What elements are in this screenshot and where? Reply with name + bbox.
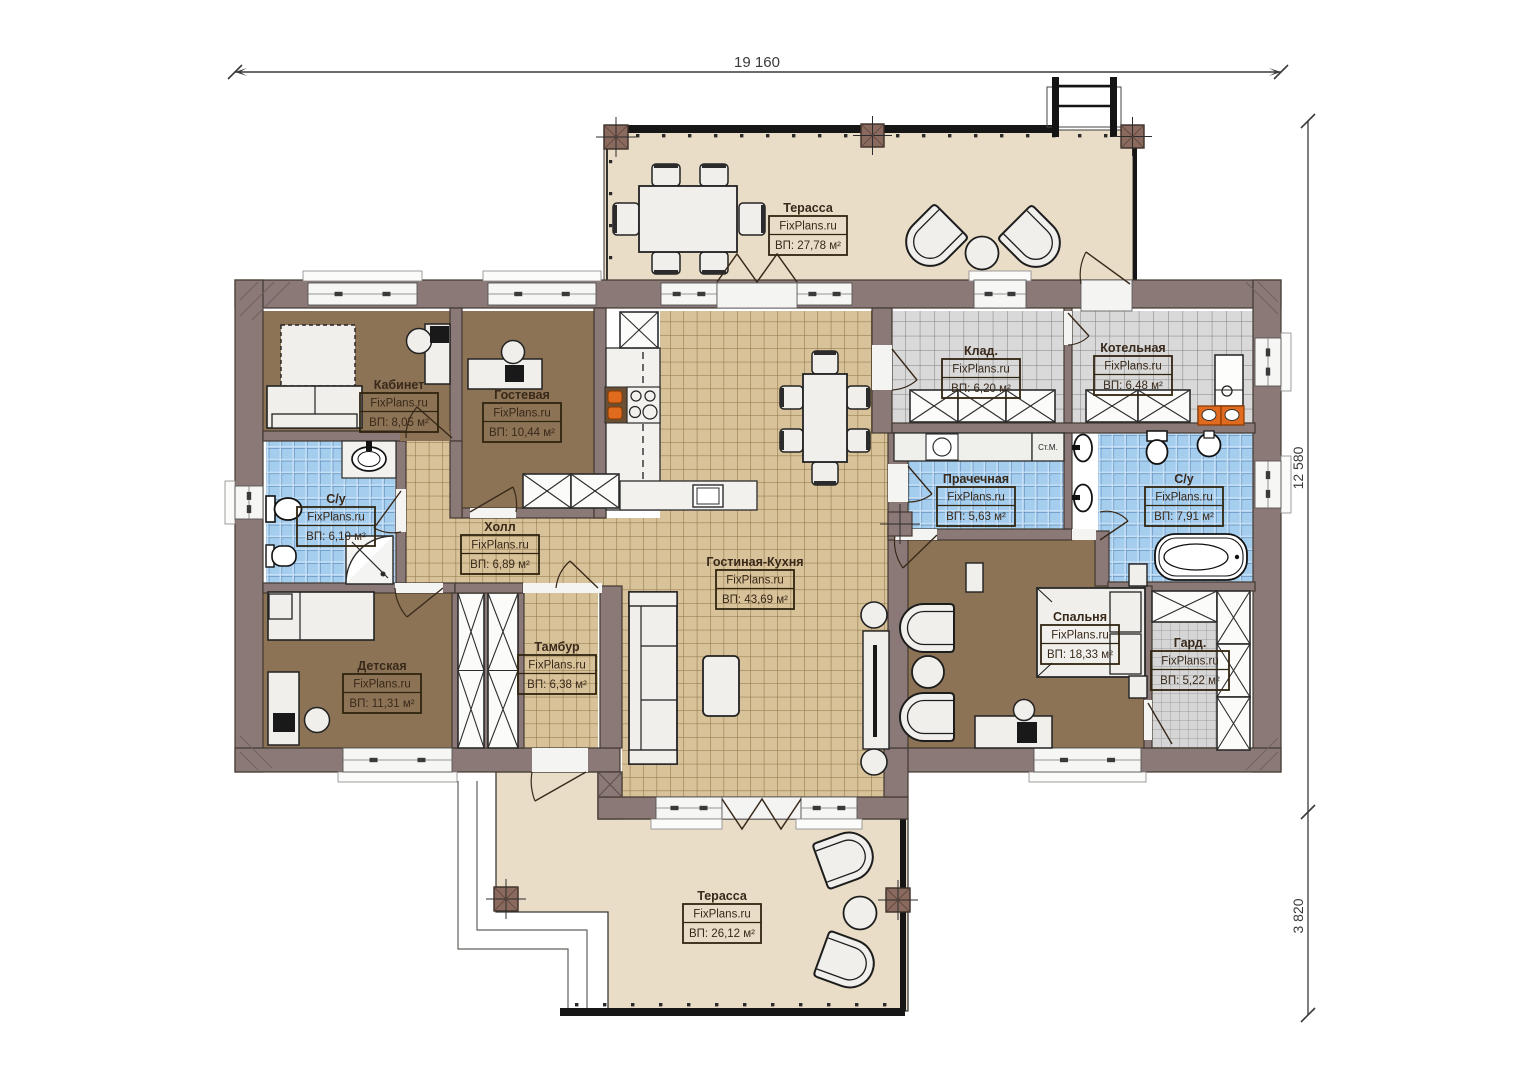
svg-text:ВП: 7,91 м²: ВП: 7,91 м² [1154,511,1214,523]
svg-text:Котельная: Котельная [1100,341,1165,355]
svg-text:Прачечная: Прачечная [943,472,1009,486]
svg-text:ВП: 10,44 м²: ВП: 10,44 м² [489,427,555,439]
svg-text:ВП: 6,38 м²: ВП: 6,38 м² [527,679,587,691]
svg-text:FixPlans.ru: FixPlans.ru [947,492,1005,504]
svg-text:Спальня: Спальня [1053,610,1107,624]
svg-text:ВП: 11,31 м²: ВП: 11,31 м² [349,698,414,710]
svg-text:FixPlans.ru: FixPlans.ru [1104,361,1162,373]
svg-text:FixPlans.ru: FixPlans.ru [952,364,1010,376]
svg-text:FixPlans.ru: FixPlans.ru [471,540,529,552]
svg-text:ВП: 43,69 м²: ВП: 43,69 м² [722,594,788,606]
svg-text:FixPlans.ru: FixPlans.ru [693,909,751,921]
svg-text:С/у: С/у [1174,472,1194,486]
svg-text:FixPlans.ru: FixPlans.ru [1155,492,1213,504]
svg-text:12 580: 12 580 [1290,446,1306,489]
svg-text:Терасса: Терасса [783,201,834,215]
svg-text:ВП: 6,20 м²: ВП: 6,20 м² [951,383,1011,395]
svg-text:ВП: 8,05 м²: ВП: 8,05 м² [369,417,429,429]
svg-text:FixPlans.ru: FixPlans.ru [370,398,428,410]
svg-text:Ст.М.: Ст.М. [1038,443,1058,452]
svg-text:ВП: 26,12 м²: ВП: 26,12 м² [689,928,755,940]
svg-text:С/у: С/у [326,492,346,506]
svg-text:Гостевая: Гостевая [494,388,550,402]
svg-text:Клад.: Клад. [964,344,998,358]
svg-text:ВП: 5,22 м²: ВП: 5,22 м² [1160,675,1220,687]
svg-text:FixPlans.ru: FixPlans.ru [353,679,411,691]
svg-text:FixPlans.ru: FixPlans.ru [726,575,784,587]
svg-text:ВП: 27,78 м²: ВП: 27,78 м² [775,240,841,252]
svg-text:Кабинет: Кабинет [374,378,425,392]
svg-text:Тамбур: Тамбур [534,640,580,654]
svg-text:FixPlans.ru: FixPlans.ru [779,221,837,233]
svg-text:Гостиная-Кухня: Гостиная-Кухня [706,555,803,569]
svg-text:Терасса: Терасса [697,889,748,903]
svg-text:ВП: 18,33 м²: ВП: 18,33 м² [1047,649,1113,661]
svg-text:Детская: Детская [357,659,406,673]
svg-text:ВП: 5,63 м²: ВП: 5,63 м² [946,511,1006,523]
svg-text:Гард.: Гард. [1174,636,1207,650]
svg-text:FixPlans.ru: FixPlans.ru [1051,630,1109,642]
svg-text:ВП: 6,89 м²: ВП: 6,89 м² [470,559,530,571]
svg-text:FixPlans.ru: FixPlans.ru [1161,656,1219,668]
svg-text:Холл: Холл [484,520,515,534]
svg-text:ВП: 6,10 м²: ВП: 6,10 м² [306,531,366,543]
svg-text:FixPlans.ru: FixPlans.ru [493,408,551,420]
svg-text:19 160: 19 160 [734,54,780,71]
svg-text:FixPlans.ru: FixPlans.ru [528,660,586,672]
svg-text:ВП: 6,48 м²: ВП: 6,48 м² [1103,380,1163,392]
svg-text:FixPlans.ru: FixPlans.ru [307,512,365,524]
svg-text:3 820: 3 820 [1290,898,1306,933]
